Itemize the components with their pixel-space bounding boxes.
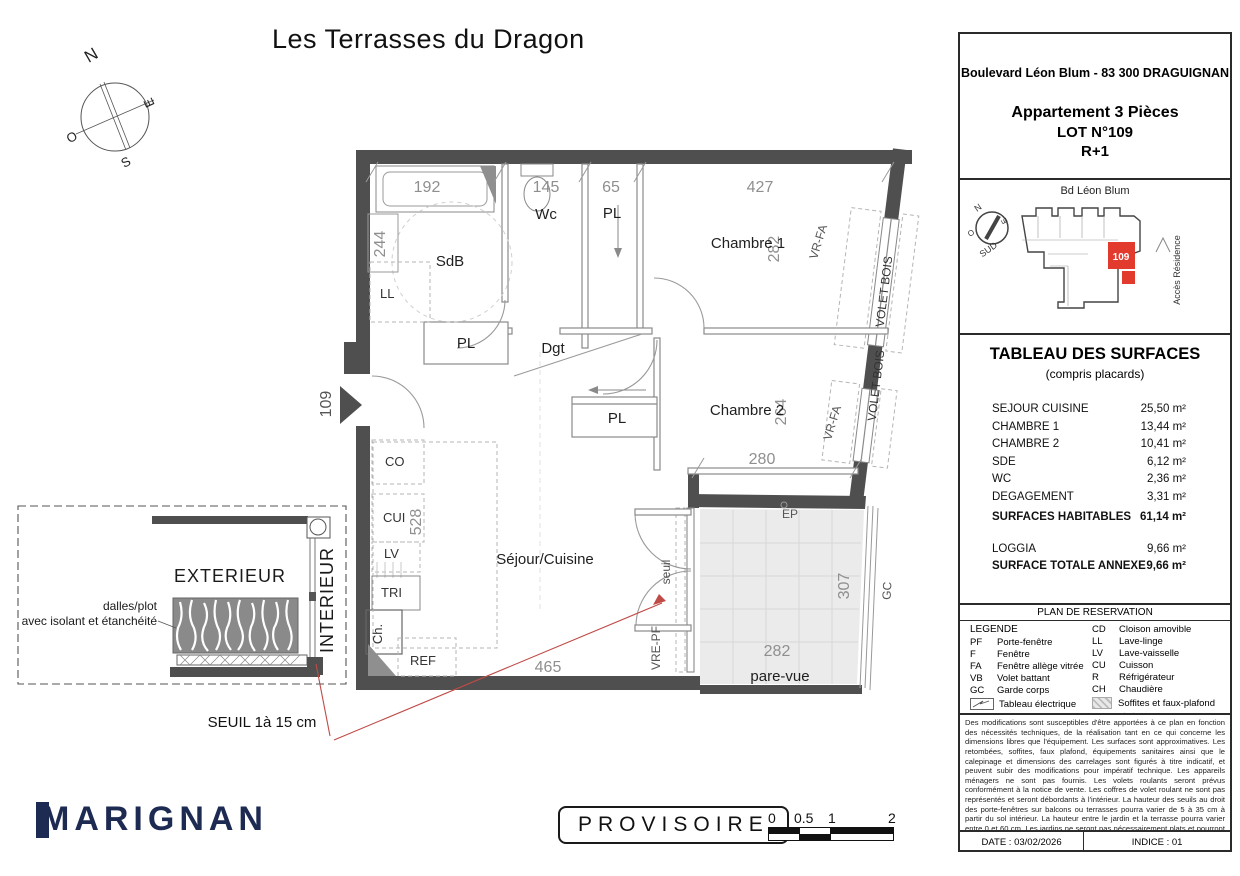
dim-307: 307 — [836, 573, 853, 600]
legend-title: LEGENDE — [970, 624, 1092, 635]
dim-65: 65 — [602, 179, 620, 196]
label-ch: Ch. — [370, 624, 385, 644]
minimap-compass: N E O SUD — [966, 202, 1010, 259]
dim-528: 528 — [408, 509, 425, 536]
surfaces-subtitle: (compris placards) — [960, 367, 1230, 381]
table-row: WC2,36 m² — [960, 473, 1230, 485]
table-row: SDE6,12 m² — [960, 456, 1230, 468]
room-chambre2: Chambre 2 — [710, 402, 784, 419]
dim-465: 465 — [535, 659, 562, 676]
label-ref: REF — [410, 653, 436, 668]
legend-item: CDCloison amovible — [1092, 624, 1224, 635]
minimap-n: N — [972, 202, 983, 214]
legend-section: PLAN DE RESERVATION LEGENDE PFPorte-fenê… — [960, 605, 1230, 715]
legend-item: RRéfrigérateur — [1092, 672, 1224, 683]
legend-item-soffites: Soffites et faux-plafond — [1092, 697, 1224, 709]
closet-pl-top: PL — [603, 205, 621, 222]
room-dgt: Dgt — [541, 340, 565, 357]
label-vrfa-1: VR-FA — [806, 223, 830, 261]
logo-m: M — [41, 800, 74, 839]
dim-145: 145 — [533, 179, 560, 196]
label-volet-bois-1: VOLET BOIS — [873, 255, 896, 327]
disclaimer-text: Des modifications sont susceptibles d'êt… — [960, 715, 1230, 832]
label-ll: LL — [380, 286, 394, 301]
legend-item: FFenêtre — [970, 649, 1092, 660]
legend-item: VBVolet battant — [970, 673, 1092, 684]
panel-footer: DATE : 03/02/2026 INDICE : 01 — [960, 832, 1230, 852]
dim-280: 280 — [749, 451, 776, 468]
scale-labels: 0 0.5 1 2 — [768, 810, 900, 826]
dim-427: 427 — [747, 179, 774, 196]
label-ep: EP — [782, 507, 798, 521]
legend-item: CUCuisson — [1092, 660, 1224, 671]
legend-item: GCGarde corps — [970, 685, 1092, 696]
minimap-building: 109 — [1022, 208, 1140, 308]
room-wc: Wc — [535, 206, 557, 223]
detail-dalles: dalles/plot — [103, 599, 158, 613]
legend-item: CHChaudière — [1092, 684, 1224, 695]
dim-244: 244 — [372, 231, 389, 258]
label-pare-vue: pare-vue — [750, 668, 809, 685]
legend-item-tableau-electrique: Tableau électrique — [970, 698, 1092, 710]
table-row: SEJOUR CUISINE25,50 m² — [960, 403, 1230, 415]
legend-item: LLLave-linge — [1092, 636, 1224, 647]
label-lv: LV — [384, 546, 399, 561]
table-row: CHAMBRE 113,44 m² — [960, 421, 1230, 433]
detail-isolant: avec isolant et étanchéité — [22, 614, 158, 628]
compass-n: N — [81, 44, 101, 67]
provisoire-stamp: PROVISOIRE — [558, 806, 789, 844]
tableau-electrique-icon — [970, 698, 994, 710]
entry-marker: 109 — [318, 386, 362, 424]
closet-pl-ch2: PL — [608, 410, 626, 427]
right-facade — [816, 144, 927, 501]
room-sejour: Séjour/Cuisine — [496, 551, 594, 568]
loggia-row: LOGGIA9,66 m² — [960, 543, 1230, 555]
minimap-street: Bd Léon Blum — [1060, 185, 1129, 197]
room-sdb: SdB — [436, 253, 464, 270]
seuil-note: SEUIL 1à 15 cm — [208, 714, 317, 731]
project-address: Boulevard Léon Blum - 83 300 DRAGUIGNAN — [960, 66, 1230, 80]
indice-field: INDICE : 01 — [1084, 832, 1230, 852]
date-field: DATE : 03/02/2026 — [960, 832, 1084, 852]
detail-interieur: INTERIEUR — [317, 547, 337, 653]
title-block-panel: Boulevard Léon Blum - 83 300 DRAGUIGNAN … — [958, 32, 1232, 852]
surfaces-habitables-row: SURFACES HABITABLES61,14 m² — [960, 511, 1230, 523]
room-chambre1: Chambre 1 — [711, 235, 785, 252]
dim-192: 192 — [414, 179, 441, 196]
compass-rose: N E O S — [64, 44, 158, 171]
soffites-icon — [1092, 697, 1112, 709]
lot-number-label: 109 — [318, 391, 335, 418]
floor-plan-sheet: { "title": "Les Terrasses du Dragon", "c… — [0, 0, 1240, 876]
surfaces-title: TABLEAU DES SURFACES — [960, 345, 1230, 364]
floor-level: R+1 — [960, 143, 1230, 160]
minimap-unit: 109 — [1113, 252, 1130, 263]
label-tri: TRI — [381, 585, 402, 600]
marignan-logo: MARIGNAN — [36, 800, 268, 839]
project-header: Boulevard Léon Blum - 83 300 DRAGUIGNAN … — [960, 34, 1230, 180]
scale-bar: 0 0.5 1 2 — [768, 810, 900, 841]
scale-bar-graphic — [768, 827, 894, 841]
compass-s: S — [118, 153, 133, 170]
apartment-type: Appartement 3 Pièces — [960, 104, 1230, 122]
logo-text: ARIGNAN — [74, 800, 268, 839]
annexe-row: SURFACE TOTALE ANNEXE9,66 m² — [960, 560, 1230, 572]
label-vrfa-2: VR-FA — [820, 404, 844, 442]
lot-number: LOT N°109 — [960, 124, 1230, 141]
detail-exterieur: EXTERIEUR — [174, 566, 286, 586]
legend-item: FAFenêtre allège vitrée — [970, 661, 1092, 672]
table-row: CHAMBRE 210,41 m² — [960, 438, 1230, 450]
table-row: DEGAGEMENT3,31 m² — [960, 491, 1230, 503]
reservation-title: PLAN DE RESERVATION — [960, 605, 1230, 621]
label-seuil: seuil — [659, 560, 673, 585]
dim-282-loggia: 282 — [764, 643, 791, 660]
legend-item: LVLave-vaisselle — [1092, 648, 1224, 659]
minimap-o: O — [966, 228, 976, 239]
minimap-acces: Accès Résidence — [1172, 235, 1182, 305]
label-vre-pf: VRE-PF — [649, 626, 663, 670]
floor-plan-drawing: N E O S — [0, 0, 958, 876]
legend-item: PFPorte-fenêtre — [970, 637, 1092, 648]
label-gc: GC — [880, 581, 895, 600]
threshold-section-detail: EXTERIEUR INTERIEUR dalles/plot avec iso… — [18, 506, 346, 684]
closet-pl-sdb: PL — [457, 335, 475, 352]
minimap-sud: SUD — [978, 240, 1000, 259]
label-cui: CUI — [383, 510, 405, 525]
label-co: CO — [385, 454, 405, 469]
surfaces-table: TABLEAU DES SURFACES (compris placards) … — [960, 335, 1230, 605]
location-minimap: Bd Léon Blum N E O SUD 109 Accès Résiden… — [960, 180, 1230, 335]
compass-o: O — [64, 128, 80, 146]
